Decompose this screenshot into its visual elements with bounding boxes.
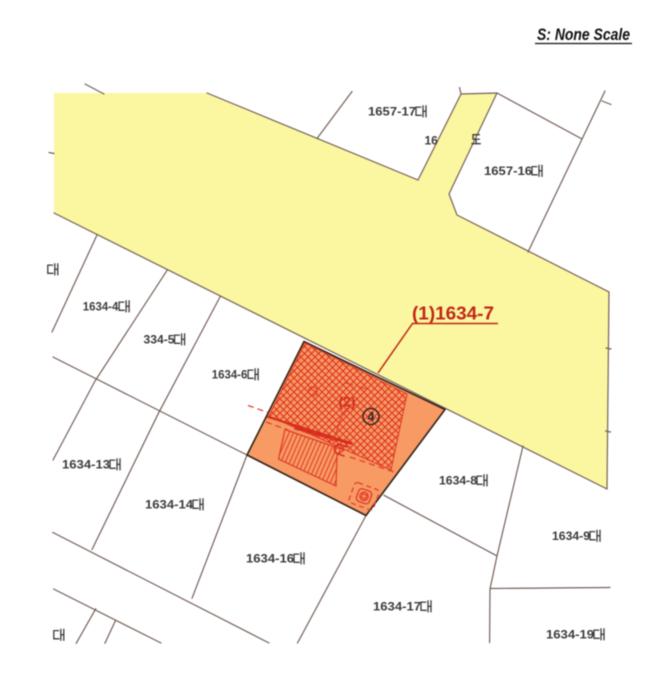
svg-text:1634-14: 1634-14 [145,497,193,511]
svg-text:1634-8: 1634-8 [439,473,477,487]
svg-text:16: 16 [425,134,439,148]
svg-text:1634-17: 1634-17 [373,599,421,613]
svg-text:1634-13: 1634-13 [62,457,110,471]
svg-text:1634-4: 1634-4 [83,299,119,313]
svg-text:1634-9: 1634-9 [552,529,590,543]
svg-text:1657-16: 1657-16 [484,164,532,178]
svg-text:S: None Scale: S: None Scale [537,26,630,44]
svg-text:1634-6: 1634-6 [212,367,248,381]
svg-text:1634-19: 1634-19 [546,627,594,641]
svg-text:334-5: 334-5 [144,332,175,346]
svg-text:1657-17: 1657-17 [368,104,416,118]
svg-text:(1)1634-7: (1)1634-7 [412,304,494,324]
svg-text:4: 4 [368,410,375,424]
svg-text:1634-16: 1634-16 [246,551,294,565]
svg-text:(2): (2) [338,394,355,410]
